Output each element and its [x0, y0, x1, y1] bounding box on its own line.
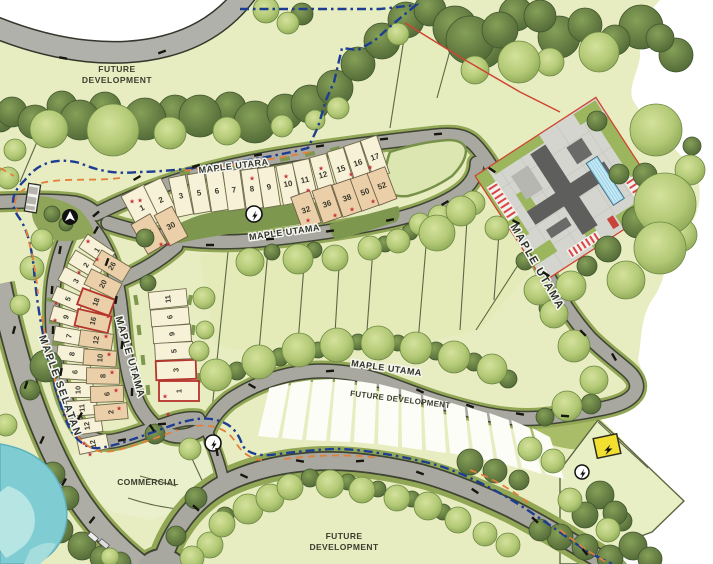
svg-text:11: 11 [163, 295, 173, 304]
svg-text:FUTURE: FUTURE [98, 64, 135, 74]
svg-text:★: ★ [53, 300, 59, 308]
svg-text:★: ★ [318, 165, 324, 173]
svg-text:DEVELOPMENT: DEVELOPMENT [82, 75, 153, 85]
svg-text:★: ★ [106, 351, 112, 359]
svg-text:★: ★ [105, 313, 111, 321]
svg-text:★: ★ [94, 256, 100, 264]
svg-text:★: ★ [113, 387, 119, 395]
svg-text:8: 8 [98, 374, 107, 378]
svg-text:6: 6 [70, 370, 79, 375]
svg-text:6: 6 [102, 392, 111, 396]
svg-text:★: ★ [349, 206, 355, 214]
svg-text:★: ★ [158, 241, 164, 249]
svg-text:3: 3 [171, 368, 180, 372]
svg-text:★: ★ [165, 241, 171, 249]
svg-text:★: ★ [332, 212, 338, 220]
svg-text:5: 5 [169, 349, 178, 354]
svg-text:★: ★ [165, 411, 171, 419]
svg-text:10: 10 [95, 354, 105, 363]
svg-text:6: 6 [165, 315, 174, 320]
svg-text:★: ★ [87, 451, 93, 459]
svg-text:★: ★ [162, 393, 168, 401]
svg-text:★: ★ [283, 173, 289, 181]
svg-text:11: 11 [77, 404, 87, 413]
svg-text:10: 10 [74, 386, 83, 394]
svg-text:12: 12 [82, 421, 92, 431]
svg-text:12: 12 [91, 335, 101, 345]
svg-text:2: 2 [106, 410, 115, 415]
svg-text:★: ★ [129, 198, 135, 206]
svg-text:COMMERCIAL: COMMERCIAL [117, 477, 179, 487]
svg-text:★: ★ [367, 164, 373, 172]
svg-text:★: ★ [249, 175, 255, 183]
svg-text:FUTURE: FUTURE [326, 531, 363, 541]
svg-text:★: ★ [85, 238, 91, 246]
svg-text:★: ★ [305, 187, 311, 195]
svg-text:★: ★ [109, 369, 115, 377]
svg-text:★: ★ [116, 405, 122, 413]
svg-text:★: ★ [370, 198, 376, 206]
svg-text:★: ★ [52, 317, 58, 325]
svg-text:★: ★ [76, 269, 82, 277]
svg-text:DEVELOPMENT: DEVELOPMENT [309, 542, 379, 552]
svg-text:9: 9 [167, 332, 176, 337]
svg-text:1: 1 [175, 389, 184, 393]
svg-text:★: ★ [137, 197, 143, 205]
svg-text:★: ★ [103, 333, 109, 341]
svg-text:★: ★ [348, 171, 354, 179]
